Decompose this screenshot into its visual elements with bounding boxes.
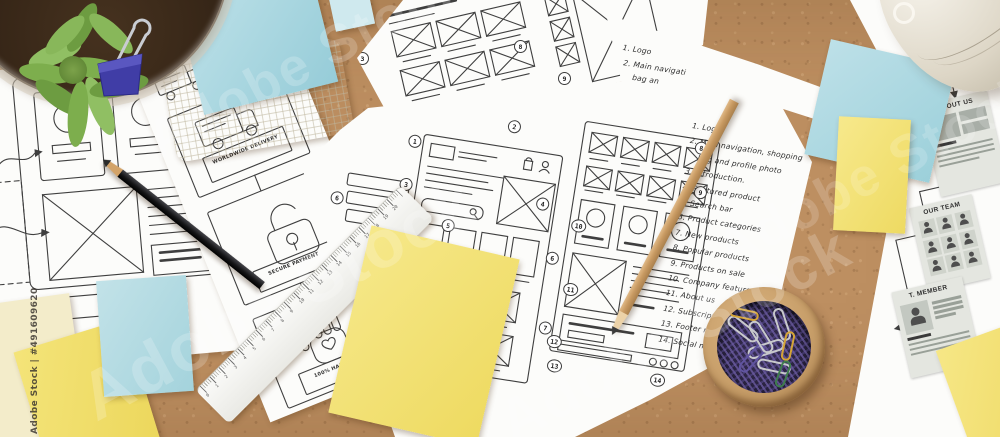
marker-9-bg: 9 xyxy=(558,72,571,85)
footer-bar-sketch xyxy=(558,344,632,362)
team-member-icon xyxy=(918,218,937,238)
team-member-icon xyxy=(963,248,982,268)
blue-sticky-note-bottomleft xyxy=(96,275,194,397)
shopping-bag-icon xyxy=(523,157,533,170)
marker-3-bg: 3 xyxy=(356,52,369,65)
team-member-icon xyxy=(945,252,964,272)
marker-13: 13 xyxy=(546,358,563,373)
image-placeholder-sketch xyxy=(42,187,143,281)
about-block xyxy=(962,118,991,134)
paperclip-cup xyxy=(703,287,825,407)
team-member-icon xyxy=(922,237,941,257)
team-member-icon xyxy=(927,256,946,276)
member-photo-icon xyxy=(900,300,934,336)
pale-blue-sticky-corner xyxy=(329,0,375,32)
desk-scene: l offers! xyxy=(0,0,1000,437)
marker-8-bg: 8 xyxy=(514,40,527,53)
team-member-icon xyxy=(958,229,977,249)
team-member-icon xyxy=(954,210,973,230)
mouse-logo-ring xyxy=(893,2,915,24)
flow-arrow xyxy=(0,224,42,239)
user-icon xyxy=(539,161,551,173)
cup-interior xyxy=(717,301,811,393)
yellow-sticky-note-right xyxy=(833,116,911,234)
team-member-icon xyxy=(940,233,959,253)
social-circles-sketch xyxy=(649,358,679,369)
marker-14: 14 xyxy=(649,373,666,388)
logo-box xyxy=(429,143,455,160)
binder-clip xyxy=(88,8,168,103)
watermark-id: Adobe Stock | #491609620 xyxy=(30,274,40,434)
team-member-icon xyxy=(936,214,955,234)
flow-arrow xyxy=(0,153,36,166)
